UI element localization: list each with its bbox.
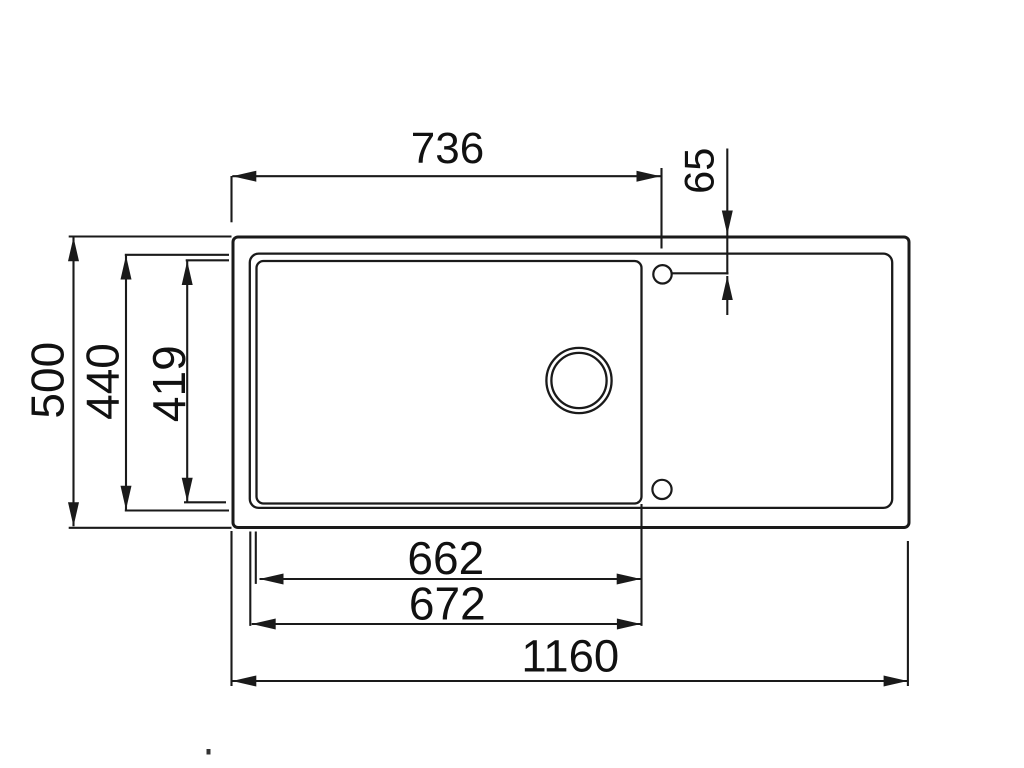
svg-text:65: 65 [676,148,723,194]
svg-text:662: 662 [407,532,484,584]
svg-text:736: 736 [411,124,484,173]
svg-text:500: 500 [22,342,74,419]
svg-text:440: 440 [77,343,129,420]
svg-text:672: 672 [409,578,486,630]
svg-text:1160: 1160 [521,631,619,682]
